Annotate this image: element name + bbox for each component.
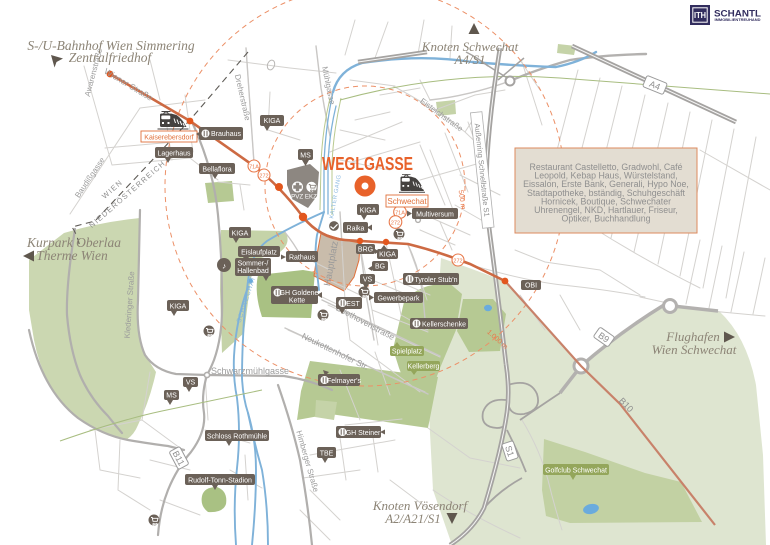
svg-text:A2/A21/S1: A2/A21/S1 bbox=[384, 511, 441, 526]
svg-text:KIGA: KIGA bbox=[379, 252, 396, 259]
svg-text:Wien Schwechat: Wien Schwechat bbox=[652, 342, 737, 357]
svg-text:Raika: Raika bbox=[347, 226, 365, 233]
svg-text:KIGA: KIGA bbox=[170, 304, 187, 311]
svg-text:VS: VS bbox=[363, 277, 373, 284]
svg-text:KIGA: KIGA bbox=[360, 208, 377, 215]
svg-text:Eislaufplatz: Eislaufplatz bbox=[241, 250, 277, 257]
svg-text:Felmayer's: Felmayer's bbox=[327, 378, 362, 385]
svg-text:Schwechat: Schwechat bbox=[387, 197, 427, 206]
svg-text:MS: MS bbox=[166, 393, 177, 400]
svg-text:Gewerbepark: Gewerbepark bbox=[377, 296, 420, 303]
svg-text:272: 272 bbox=[259, 174, 268, 180]
svg-text:BRG: BRG bbox=[358, 247, 373, 254]
svg-text:Sommer-/: Sommer-/ bbox=[238, 261, 269, 268]
svg-text:Hallenbad: Hallenbad bbox=[237, 268, 269, 275]
svg-text:Tyroler Stub'n: Tyroler Stub'n bbox=[415, 277, 458, 284]
svg-text:Kette: Kette bbox=[289, 298, 305, 305]
svg-text:272: 272 bbox=[391, 221, 400, 227]
svg-text:Rathaus: Rathaus bbox=[289, 255, 316, 262]
svg-text:Lagerhaus: Lagerhaus bbox=[157, 151, 191, 158]
svg-text:EST: EST bbox=[346, 301, 360, 308]
svg-text:BG: BG bbox=[375, 264, 385, 271]
svg-text:Optiker, Buchhandlung: Optiker, Buchhandlung bbox=[561, 214, 650, 224]
svg-text:Brauhaus: Brauhaus bbox=[211, 131, 241, 138]
svg-text:GH Goldene: GH Goldene bbox=[280, 290, 319, 297]
svg-text:Golfclub Schwechat: Golfclub Schwechat bbox=[545, 468, 607, 475]
svg-text:MS: MS bbox=[300, 153, 311, 160]
svg-text:ITH: ITH bbox=[694, 10, 706, 20]
svg-text:Kellerschenke: Kellerschenke bbox=[422, 322, 466, 329]
svg-text:272: 272 bbox=[453, 259, 462, 265]
svg-text:Schloss Rothmühle: Schloss Rothmühle bbox=[207, 434, 267, 441]
svg-text:♪: ♪ bbox=[222, 262, 226, 271]
svg-text:TBE: TBE bbox=[320, 451, 334, 458]
svg-text:SCHANTL: SCHANTL bbox=[714, 9, 762, 19]
svg-text:Bellaflora: Bellaflora bbox=[202, 167, 231, 174]
svg-text:PVZ EKZ: PVZ EKZ bbox=[291, 194, 317, 201]
svg-text:Spielplatz: Spielplatz bbox=[392, 349, 423, 356]
svg-text:GH Steiner: GH Steiner bbox=[346, 430, 381, 437]
svg-text:Multiversum: Multiversum bbox=[416, 212, 454, 219]
svg-text:A4/S1: A4/S1 bbox=[453, 52, 485, 67]
svg-text:Schwarzmühlgasse: Schwarzmühlgasse bbox=[211, 366, 289, 376]
svg-text:KIGA: KIGA bbox=[232, 231, 249, 238]
svg-text:Zentralfriedhof: Zentralfriedhof bbox=[69, 50, 154, 65]
svg-text:Therme Wien: Therme Wien bbox=[36, 248, 108, 263]
svg-text:WEGLGASSE: WEGLGASSE bbox=[322, 154, 413, 174]
svg-text:Kellerberg: Kellerberg bbox=[408, 364, 440, 371]
svg-text:OBI: OBI bbox=[525, 283, 537, 290]
svg-text:Rudolf-Tonn-Stadion: Rudolf-Tonn-Stadion bbox=[188, 478, 252, 485]
svg-text:Kaiserebersdorf: Kaiserebersdorf bbox=[144, 135, 193, 142]
svg-text:VS: VS bbox=[186, 380, 196, 387]
svg-text:KIGA: KIGA bbox=[264, 118, 281, 125]
svg-text:IMMOBILIENTREUHAND: IMMOBILIENTREUHAND bbox=[715, 18, 762, 22]
svg-text:71A: 71A bbox=[249, 165, 259, 171]
